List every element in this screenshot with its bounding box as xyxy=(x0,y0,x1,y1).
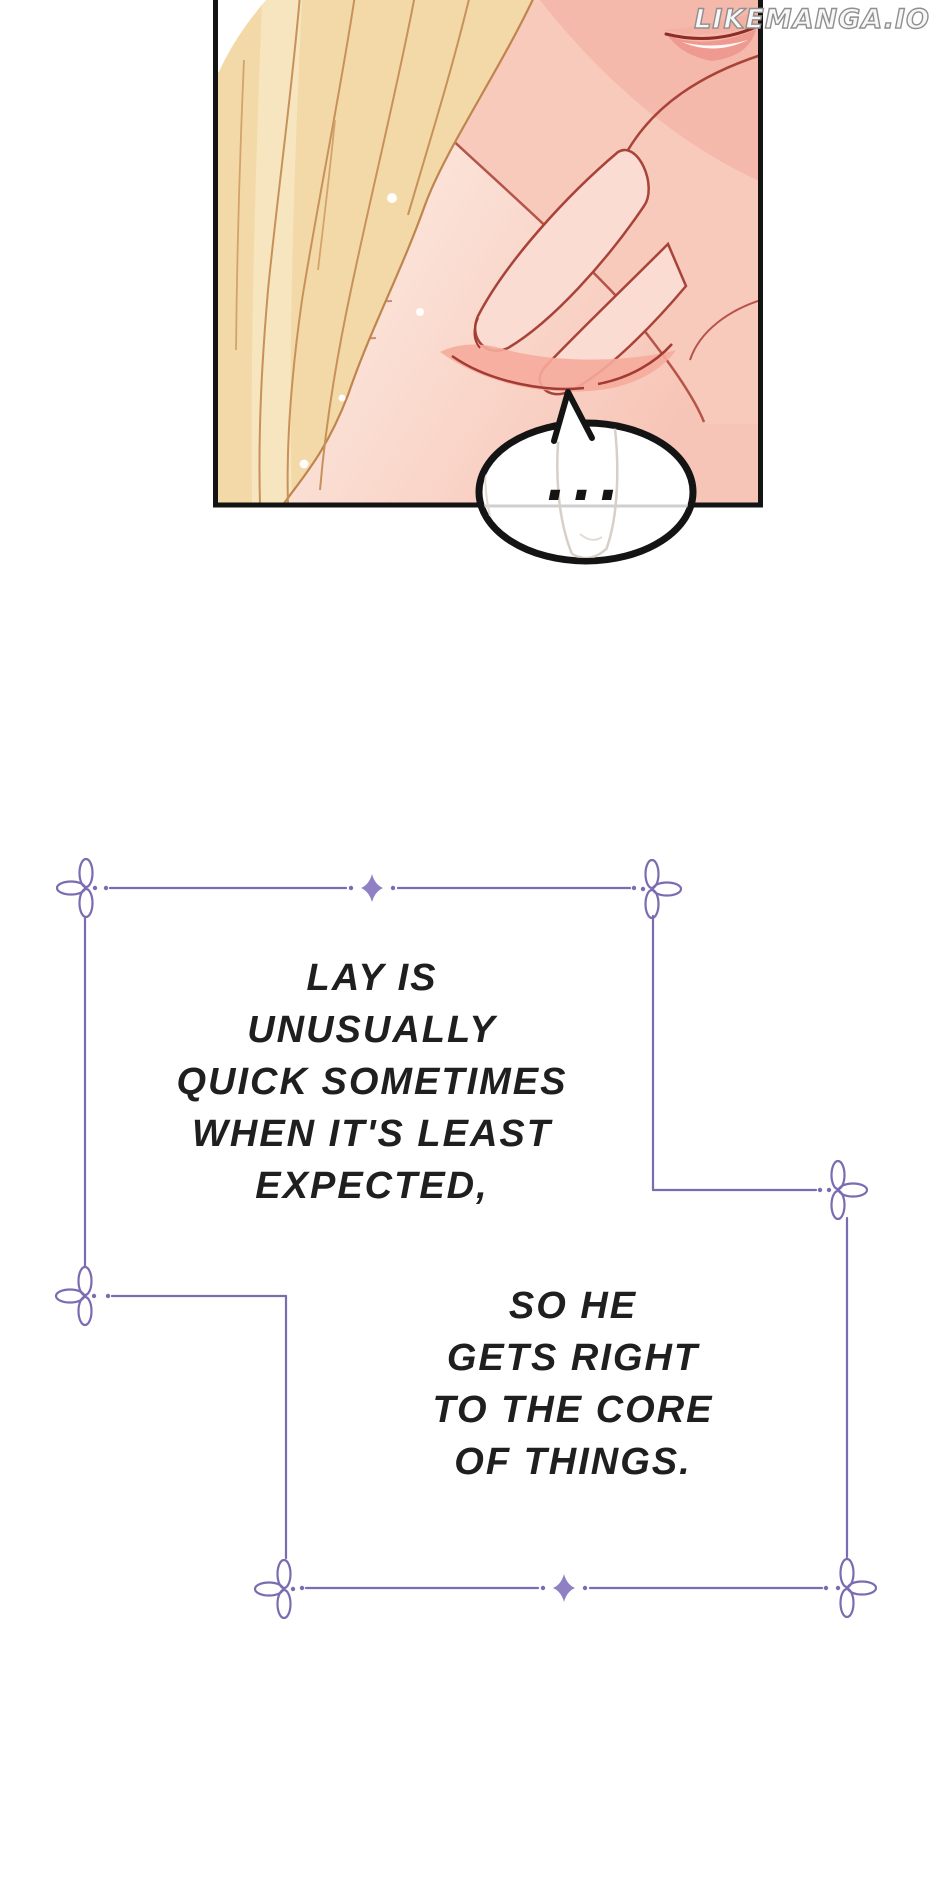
narration-line: UNUSUALLY xyxy=(122,1004,622,1056)
speech-bubble-text: ... xyxy=(546,450,626,513)
narration-line: GETS RIGHT xyxy=(323,1332,823,1384)
narration-line: WHEN IT'S LEAST xyxy=(122,1108,622,1160)
manga-panel: ... xyxy=(215,0,761,561)
narration-line: OF THINGS. xyxy=(323,1436,823,1488)
sparkle-diamond-icon xyxy=(349,874,395,902)
narration-line: EXPECTED, xyxy=(122,1160,622,1212)
narration-block-1: LAY IS UNUSUALLY QUICK SOMETIMES WHEN IT… xyxy=(122,952,622,1212)
narration-line: TO THE CORE xyxy=(323,1384,823,1436)
clover-ornament-icon xyxy=(57,859,97,917)
narration-block-2: SO HE GETS RIGHT TO THE CORE OF THINGS. xyxy=(323,1280,823,1488)
narration-line: QUICK SOMETIMES xyxy=(122,1056,622,1108)
sparkle-diamond-icon xyxy=(541,1574,587,1602)
narration-line: LAY IS xyxy=(122,952,622,1004)
comic-artwork-svg: ... xyxy=(0,0,940,1893)
narration-line: SO HE xyxy=(323,1280,823,1332)
clover-ornament-icon xyxy=(255,1560,295,1618)
clover-ornament-icon xyxy=(641,860,681,918)
clover-ornament-icon xyxy=(56,1267,96,1325)
watermark-text: LIKEMANGA.IO xyxy=(694,4,930,35)
page-root: ... xyxy=(0,0,940,1893)
clover-ornament-icon xyxy=(827,1161,867,1219)
clover-ornament-icon xyxy=(836,1559,876,1617)
panel-illustration xyxy=(215,0,761,505)
